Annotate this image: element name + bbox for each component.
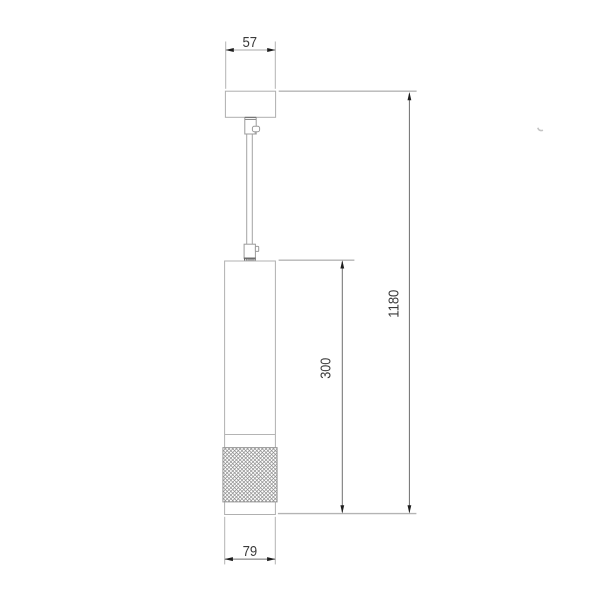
svg-text:57: 57 (243, 34, 258, 51)
svg-text:79: 79 (243, 543, 258, 560)
svg-text:1180: 1180 (386, 290, 403, 318)
svg-text:300: 300 (318, 358, 335, 379)
